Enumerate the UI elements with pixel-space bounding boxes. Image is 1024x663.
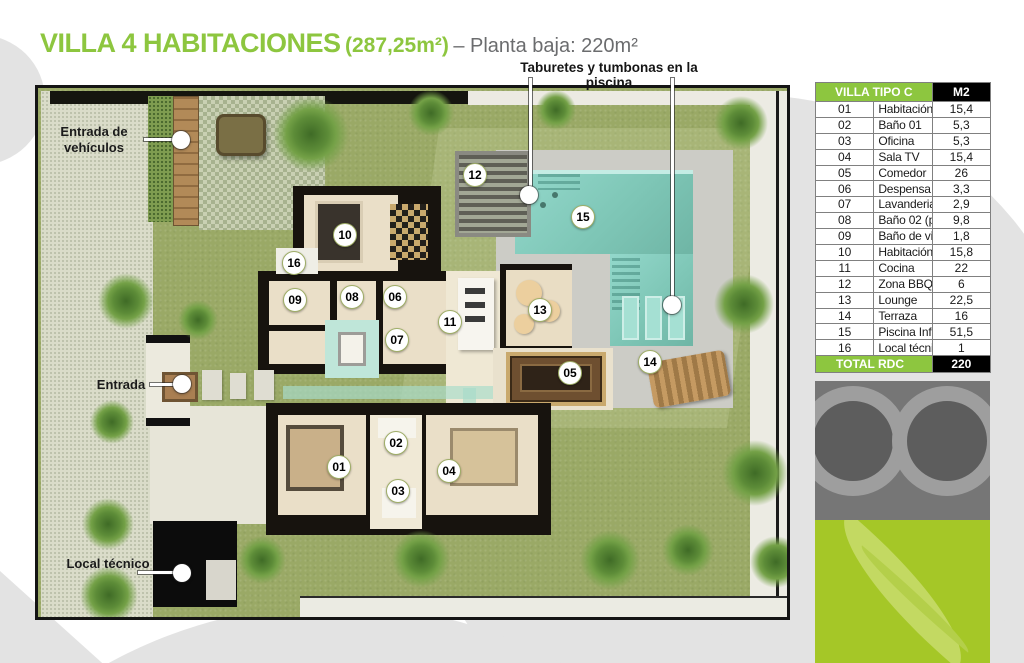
palm-tree xyxy=(392,530,450,588)
legend-row: 12Zona BBQ6 xyxy=(816,276,991,292)
legend-header-row: VILLA TIPO C M2 xyxy=(816,83,991,102)
legend-cell: 15,4 xyxy=(932,149,990,165)
legend-cell: 3,3 xyxy=(932,181,990,197)
legend-cell: Baño 01 xyxy=(874,117,932,133)
leader-line-pool-2 xyxy=(671,78,674,296)
legend-cell: 14 xyxy=(816,308,874,324)
legend-row: 06Despensa de cocina3,3 xyxy=(816,181,991,197)
legend-cell: 02 xyxy=(816,117,874,133)
legend-unit: M2 xyxy=(932,83,990,102)
palm-tree xyxy=(722,440,788,506)
lounge-room xyxy=(500,264,572,352)
palm-tree xyxy=(273,96,349,172)
pool-lounger xyxy=(622,296,639,340)
legend-total-label: TOTAL RDC xyxy=(816,356,933,373)
floor-plan: Entrada de vehículos Entrada Local técni… xyxy=(35,85,790,620)
legend-cell: 16 xyxy=(932,308,990,324)
label-vehicle-entrance: Entrada de vehículos xyxy=(43,124,145,157)
lounge-sofa xyxy=(538,300,560,322)
legend-row: 08Baño 02 (principal)9,8 xyxy=(816,213,991,229)
technical-room-step xyxy=(206,560,236,600)
page: VILLA 4 HABITACIONES (287,25m²) – Planta… xyxy=(0,0,1024,663)
leader-dot-entrance xyxy=(173,375,191,393)
logo-block-gray xyxy=(815,381,990,520)
title-main: VILLA 4 HABITACIONES xyxy=(40,28,341,58)
bedroom2-bed xyxy=(315,201,363,263)
stepping-stone xyxy=(254,370,274,400)
stepping-stone xyxy=(230,373,246,399)
legend-total-value: 220 xyxy=(932,356,990,373)
legend-cell: 6 xyxy=(932,276,990,292)
legend-table: VILLA TIPO C M2 01Habitación 0115,402Bañ… xyxy=(815,82,991,373)
legend-cell: Terraza xyxy=(874,308,932,324)
legend-cell: 1 xyxy=(932,340,990,356)
legend-cell: 15,8 xyxy=(932,245,990,261)
pool-lounger xyxy=(645,296,662,340)
legend-row: 11Cocina22 xyxy=(816,260,991,276)
legend-cell: 1,8 xyxy=(932,229,990,245)
logo-block-green xyxy=(815,520,990,663)
legend-row: 02Baño 015,3 xyxy=(816,117,991,133)
legend-cell: Habitación 02 xyxy=(874,245,932,261)
label-entrance: Entrada xyxy=(90,377,152,393)
legend-cell: 06 xyxy=(816,181,874,197)
leaf-blade-icon xyxy=(853,545,977,652)
legend-cell: 13 xyxy=(816,292,874,308)
leader-line-vehicle xyxy=(144,138,172,141)
legend-row: 05Comedor26 xyxy=(816,165,991,181)
palm-tree xyxy=(580,530,640,590)
legend-row: 14Terraza16 xyxy=(816,308,991,324)
palm-tree xyxy=(80,566,138,620)
legend-cell: Zona BBQ xyxy=(874,276,932,292)
logo-ring-icon xyxy=(892,386,990,496)
legend-cell: Lavanderia xyxy=(874,197,932,213)
legend-row: 01Habitación 0115,4 xyxy=(816,102,991,118)
legend-cell: 2,9 xyxy=(932,197,990,213)
legend-row: 07Lavanderia2,9 xyxy=(816,197,991,213)
bathroom-fixture xyxy=(378,418,416,438)
legend-row: 03Oficina5,3 xyxy=(816,133,991,149)
technical-closet xyxy=(276,248,318,274)
legend-cell: Piscina Infinity xyxy=(874,324,932,340)
legend-cell: Baño de visita xyxy=(874,229,932,245)
palm-tree xyxy=(408,90,454,136)
office-fixture xyxy=(382,488,416,518)
lounge-sofa xyxy=(514,314,534,334)
legend-cell: 03 xyxy=(816,133,874,149)
leader-dot-pool-1 xyxy=(520,186,538,204)
legend-cell: Oficina xyxy=(874,133,932,149)
legend-row: 15Piscina Infinity51,5 xyxy=(816,324,991,340)
palm-tree xyxy=(98,273,154,329)
leader-dot-vehicle xyxy=(172,131,190,149)
legend-cell: 05 xyxy=(816,165,874,181)
palm-tree xyxy=(90,400,134,444)
comedor-table xyxy=(520,364,592,392)
entrance-wall-bottom xyxy=(146,418,190,426)
legend-cell: 07 xyxy=(816,197,874,213)
legend-cell: 51,5 xyxy=(932,324,990,340)
salatv-sofa xyxy=(450,428,518,486)
legend-cell: 01 xyxy=(816,102,874,118)
legend-cell: 15 xyxy=(816,324,874,340)
legend-cell: 22,5 xyxy=(932,292,990,308)
legend-cell: 22 xyxy=(932,260,990,276)
bottom-walkway xyxy=(300,596,790,620)
legend-cell: Habitación 01 xyxy=(874,102,932,118)
entrance-wall-top xyxy=(146,335,190,343)
label-technical-room: Local técnico xyxy=(66,556,150,572)
palm-tree xyxy=(662,524,714,576)
leader-line-entrance xyxy=(150,383,174,386)
legend-total-row: TOTAL RDC 220 xyxy=(816,356,991,373)
entry-hedge xyxy=(148,96,173,222)
legend-row: 04Sala TV15,4 xyxy=(816,149,991,165)
title-subtitle: – Planta baja: 220m² xyxy=(453,35,638,57)
vehicle-gate xyxy=(173,96,199,226)
legend-row: 16Local técnico1 xyxy=(816,340,991,356)
legend-cell: 09 xyxy=(816,229,874,245)
legend-cell: Local técnico xyxy=(874,340,932,356)
wall-partition xyxy=(269,325,331,331)
legend-cell: Sala TV xyxy=(874,149,932,165)
legend-panel: VILLA TIPO C M2 01Habitación 0115,402Bañ… xyxy=(815,82,991,373)
palm-tree xyxy=(714,274,774,334)
legend-cell: 08 xyxy=(816,213,874,229)
legend-cell: Despensa de cocina xyxy=(874,181,932,197)
legend-cell: 16 xyxy=(816,340,874,356)
legend-cell: 04 xyxy=(816,149,874,165)
lounge-sofa xyxy=(516,280,542,306)
palm-tree xyxy=(82,498,134,550)
legend-cell: Comedor xyxy=(874,165,932,181)
legend-cell: 5,3 xyxy=(932,117,990,133)
parked-quad xyxy=(216,114,266,156)
palm-tree xyxy=(178,300,218,340)
legend-row: 10Habitación 0215,8 xyxy=(816,245,991,261)
leader-line-pool-1 xyxy=(529,78,532,186)
legend-title: VILLA TIPO C xyxy=(816,83,933,102)
palm-tree xyxy=(536,90,576,130)
dining-table xyxy=(338,332,366,366)
legend-row: 09Baño de visita1,8 xyxy=(816,229,991,245)
leader-dot-technical xyxy=(173,564,191,582)
legend-cell: Baño 02 (principal) xyxy=(874,213,932,229)
pool-stool xyxy=(540,202,546,208)
legend-cell: 11 xyxy=(816,260,874,276)
bedroom2-rug xyxy=(390,204,428,260)
stepping-stone xyxy=(202,370,222,400)
palm-tree xyxy=(238,536,286,584)
leader-dot-pool-2 xyxy=(663,296,681,314)
page-title: VILLA 4 HABITACIONES (287,25m²) – Planta… xyxy=(40,28,638,59)
legend-cell: 26 xyxy=(932,165,990,181)
legend-cell: 15,4 xyxy=(932,102,990,118)
title-area: (287,25m²) xyxy=(345,34,449,57)
pool-steps-top xyxy=(538,174,580,190)
legend-cell: Lounge xyxy=(874,292,932,308)
legend-row: 13Lounge22,5 xyxy=(816,292,991,308)
palm-tree xyxy=(714,96,768,150)
legend-cell: 12 xyxy=(816,276,874,292)
legend-cell: 9,8 xyxy=(932,213,990,229)
legend-cell: Cocina xyxy=(874,260,932,276)
bedroom1-bed xyxy=(286,425,344,491)
legend-cell: 10 xyxy=(816,245,874,261)
legend-cell: 5,3 xyxy=(932,133,990,149)
pool-stool xyxy=(552,192,558,198)
kitchen-appliances xyxy=(465,288,485,328)
